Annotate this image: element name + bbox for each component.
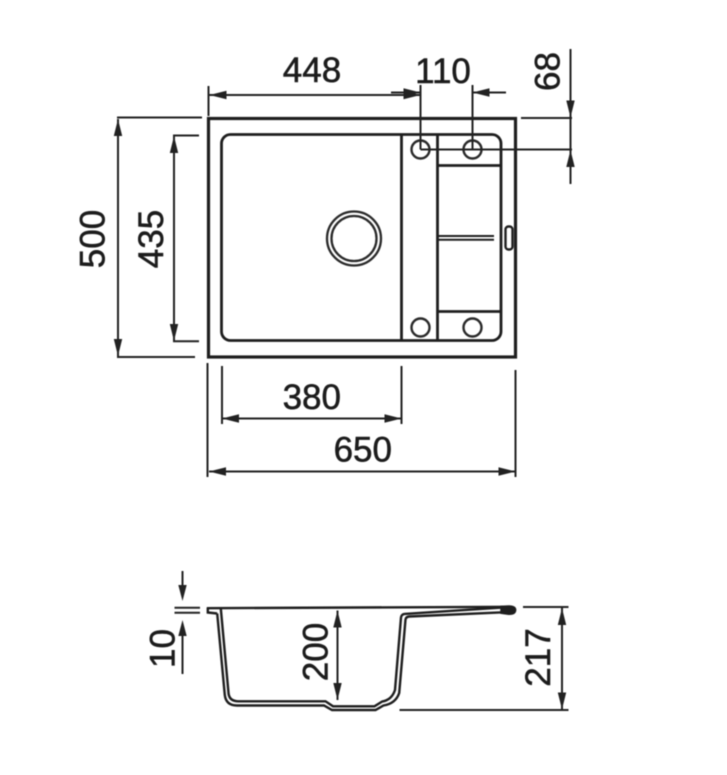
svg-text:448: 448 [283,51,341,90]
svg-text:68: 68 [529,52,568,91]
svg-text:200: 200 [297,623,336,681]
svg-text:650: 650 [334,431,392,470]
svg-text:10: 10 [144,629,183,668]
svg-text:380: 380 [283,378,341,417]
svg-text:435: 435 [132,210,171,268]
svg-text:217: 217 [519,628,558,686]
svg-text:500: 500 [74,210,113,268]
svg-text:110: 110 [415,52,471,91]
